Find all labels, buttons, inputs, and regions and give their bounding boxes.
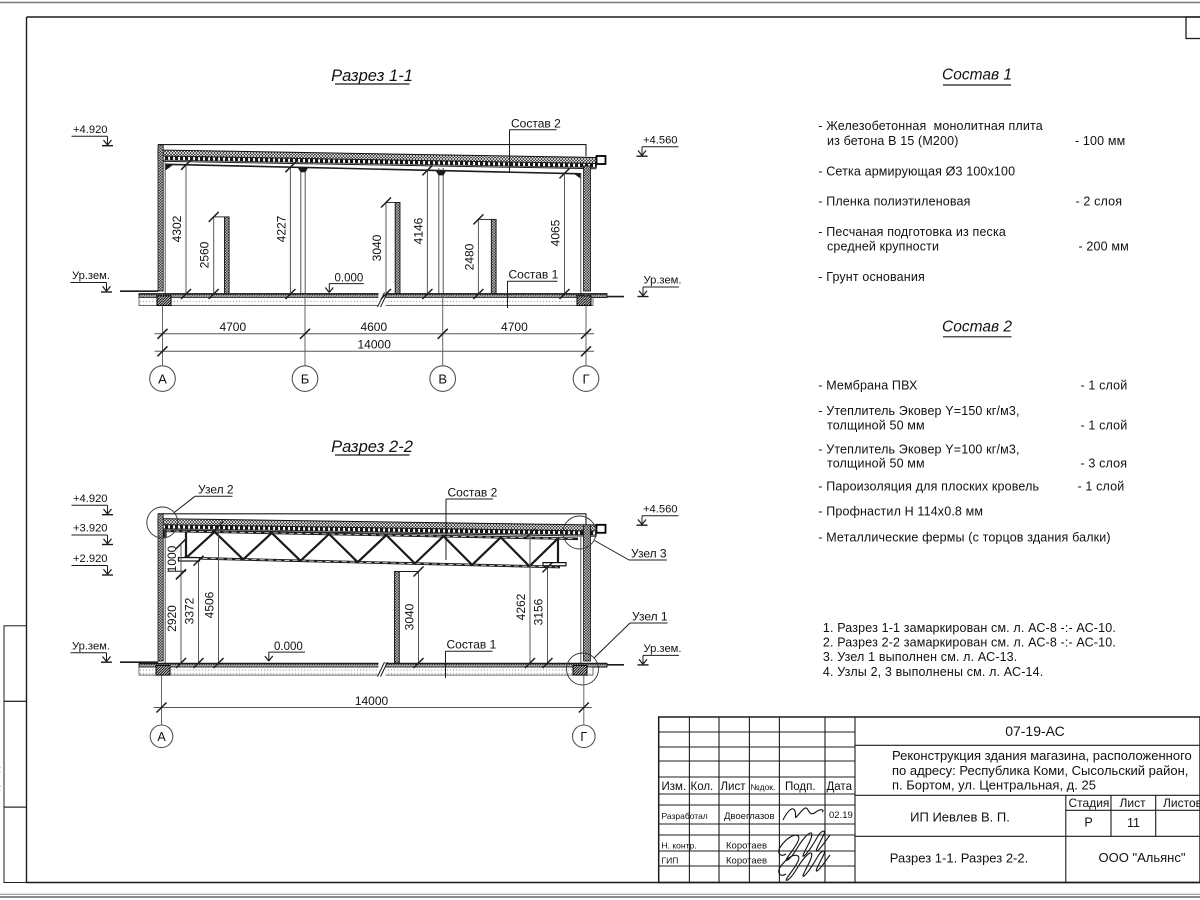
svg-text:- Мембрана ПВХ: - Мембрана ПВХ bbox=[818, 379, 918, 393]
svg-text:Г: Г bbox=[582, 371, 589, 386]
svg-text:Ур.зем.: Ур.зем. bbox=[72, 270, 110, 282]
svg-text:- 200 мм: - 200 мм bbox=[1079, 240, 1129, 254]
svg-text:по адресу: Республика Коми, Сы: по адресу: Республика Коми, Сысольский р… bbox=[892, 763, 1188, 778]
svg-text:В: В bbox=[438, 371, 447, 386]
svg-text:3372: 3372 bbox=[183, 597, 197, 624]
svg-text:- Профнастил Н 114х0.8 мм: - Профнастил Н 114х0.8 мм bbox=[818, 505, 983, 519]
svg-text:- Пленка полиэтиленовая: - Пленка полиэтиленовая bbox=[818, 195, 970, 209]
svg-text:Двоеглазов: Двоеглазов bbox=[724, 811, 775, 822]
svg-text:4262: 4262 bbox=[514, 593, 528, 620]
svg-text:- 2 слоя: - 2 слоя bbox=[1076, 195, 1123, 209]
svg-text:п. Бортом, ул. Центральная, д.: п. Бортом, ул. Центральная, д. 25 bbox=[892, 778, 1096, 793]
svg-text:- Сетка армирующая Ø3 100х100: - Сетка армирующая Ø3 100х100 bbox=[818, 164, 1015, 178]
svg-text:Б: Б bbox=[301, 371, 310, 386]
svg-text:Ур.зем.: Ур.зем. bbox=[644, 275, 682, 287]
svg-text:- 1 слой: - 1 слой bbox=[1081, 418, 1128, 432]
svg-text:07-19-АС: 07-19-АС bbox=[1005, 723, 1065, 739]
svg-text:4506: 4506 bbox=[203, 591, 217, 618]
svg-text:Узел 1: Узел 1 bbox=[632, 610, 668, 624]
svg-text:1. Разрез 1-1 замаркирован см.: 1. Разрез 1-1 замаркирован см. л. АС-8 -… bbox=[823, 621, 1116, 635]
svg-text:3040: 3040 bbox=[370, 234, 384, 261]
svg-text:- 3 слоя: - 3 слоя bbox=[1081, 457, 1128, 471]
svg-text:+3.920: +3.920 bbox=[73, 523, 108, 535]
svg-text:0.000: 0.000 bbox=[335, 273, 364, 285]
svg-text:А: А bbox=[157, 730, 166, 744]
svg-text:- 1 слой: - 1 слой bbox=[1078, 480, 1125, 494]
svg-text:4302: 4302 bbox=[170, 215, 184, 242]
svg-text:4. Узлы 2, 3 выполнены см. л.: 4. Узлы 2, 3 выполнены см. л. АС-14. bbox=[823, 665, 1043, 679]
svg-text:Узел 3: Узел 3 bbox=[631, 547, 667, 561]
svg-text:Разрез 1-1. Разрез 2-2.: Разрез 1-1. Разрез 2-2. bbox=[890, 851, 1028, 866]
svg-text:Разрез 2-2: Разрез 2-2 bbox=[331, 438, 413, 456]
svg-text:толщиной 50 мм: толщиной 50 мм bbox=[827, 418, 925, 432]
svg-text:11: 11 bbox=[1127, 816, 1140, 830]
svg-text:2480: 2480 bbox=[462, 243, 476, 270]
svg-text:из бетона В 15 (М200): из бетона В 15 (М200) bbox=[827, 134, 959, 148]
svg-text:- Железобетонная монолитная п: - Железобетонная монолитная плита bbox=[818, 119, 1043, 133]
svg-text:Г: Г bbox=[580, 730, 587, 744]
svg-text:+4.920: +4.920 bbox=[73, 124, 108, 136]
svg-text:Лист: Лист bbox=[721, 781, 747, 793]
svg-text:Взам. инв. №: Взам. инв. № bbox=[0, 651, 1, 697]
svg-text:Подп.: Подп. bbox=[785, 781, 816, 793]
svg-text:ГИП: ГИП bbox=[662, 856, 679, 866]
svg-text:Ур.зем.: Ур.зем. bbox=[644, 643, 682, 655]
svg-text:14000: 14000 bbox=[355, 694, 389, 708]
svg-text:толщиной 50 мм: толщиной 50 мм bbox=[827, 457, 925, 471]
svg-text:2920: 2920 bbox=[165, 605, 179, 632]
svg-text:+4.560: +4.560 bbox=[643, 503, 678, 515]
svg-text:- Песчаная подготовка из песка: - Песчаная подготовка из песка bbox=[818, 225, 1006, 239]
svg-text:Коротаев: Коротаев bbox=[726, 856, 767, 867]
svg-text:А: А bbox=[158, 371, 167, 386]
svg-text:14000: 14000 bbox=[358, 338, 392, 352]
svg-text:0.000: 0.000 bbox=[274, 641, 303, 653]
svg-text:Лист: Лист bbox=[1120, 796, 1147, 810]
svg-text:Разработал: Разработал bbox=[662, 811, 708, 821]
svg-text:2560: 2560 bbox=[198, 241, 212, 268]
svg-text:- 100 мм: - 100 мм bbox=[1075, 134, 1125, 148]
svg-text:Разрез 1-1: Разрез 1-1 bbox=[331, 67, 413, 85]
svg-text:- Грунт основания: - Грунт основания bbox=[818, 270, 925, 284]
svg-text:Стадия: Стадия bbox=[1069, 796, 1110, 810]
svg-text:Н. контр.: Н. контр. bbox=[662, 841, 697, 851]
svg-text:Листов: Листов bbox=[1163, 796, 1200, 810]
svg-text:- Металлические фермы (с торцо: - Металлические фермы (с торцов здания б… bbox=[818, 531, 1110, 545]
svg-text:2. Разрез 2-2 замаркирован см.: 2. Разрез 2-2 замаркирован см. л. АС-8 -… bbox=[823, 636, 1116, 650]
svg-text:- 1 слой: - 1 слой bbox=[1081, 379, 1128, 393]
svg-text:+4.920: +4.920 bbox=[73, 493, 108, 505]
svg-text:4700: 4700 bbox=[501, 320, 528, 334]
svg-text:3156: 3156 bbox=[532, 598, 546, 625]
svg-text:4146: 4146 bbox=[411, 217, 425, 244]
svg-text:4065: 4065 bbox=[549, 219, 563, 246]
svg-text:Подп. и дата: Подп. и дата bbox=[0, 755, 1, 800]
svg-text:Коротаев: Коротаев bbox=[726, 841, 767, 852]
svg-text:Ур.зем.: Ур.зем. bbox=[72, 640, 110, 652]
svg-text:ИП Иевлев В. П.: ИП Иевлев В. П. bbox=[910, 810, 1010, 825]
svg-text:- Утеплитель Эковер Y=100 кг/м: - Утеплитель Эковер Y=100 кг/м3, bbox=[818, 443, 1019, 457]
svg-text:3040: 3040 bbox=[403, 603, 417, 630]
svg-text:Изм.: Изм. bbox=[662, 781, 687, 793]
svg-text:Состав 1: Состав 1 bbox=[942, 67, 1012, 84]
svg-text:Кол.: Кол. bbox=[691, 781, 714, 793]
svg-text:Р: Р bbox=[1084, 816, 1092, 830]
svg-text:4700: 4700 bbox=[219, 320, 246, 334]
svg-text:№док.: №док. bbox=[751, 782, 776, 792]
svg-text:Состав 2: Состав 2 bbox=[942, 318, 1012, 335]
svg-text:Реконструкция здания магазина,: Реконструкция здания магазина, расположе… bbox=[892, 748, 1192, 763]
svg-text:- Утеплитель Эковер Y=150 кг/м: - Утеплитель Эковер Y=150 кг/м3, bbox=[818, 404, 1019, 418]
svg-text:средней крупности: средней крупности bbox=[827, 240, 939, 254]
svg-text:- Пароизоляция для плоских кро: - Пароизоляция для плоских кровель bbox=[818, 480, 1039, 494]
svg-text:Состав 1: Состав 1 bbox=[447, 638, 497, 652]
svg-text:Состав 2: Состав 2 bbox=[448, 486, 498, 500]
svg-text:3. Узел 1 выполнен см. л. АС-1: 3. Узел 1 выполнен см. л. АС-13. bbox=[823, 650, 1018, 664]
svg-text:Состав 1: Состав 1 bbox=[509, 268, 559, 282]
svg-text:Узел 2: Узел 2 bbox=[198, 483, 234, 497]
svg-text:1000: 1000 bbox=[165, 545, 179, 572]
svg-text:Состав 2: Состав 2 bbox=[511, 117, 561, 131]
svg-text:+4.560: +4.560 bbox=[643, 134, 678, 146]
svg-text:+2.920: +2.920 bbox=[73, 553, 108, 565]
svg-text:4600: 4600 bbox=[360, 320, 387, 334]
svg-text:02.19: 02.19 bbox=[829, 810, 853, 821]
svg-text:4227: 4227 bbox=[274, 215, 288, 242]
svg-text:ООО "Альянс": ООО "Альянс" bbox=[1099, 850, 1186, 865]
svg-text:Дата: Дата bbox=[827, 781, 853, 793]
